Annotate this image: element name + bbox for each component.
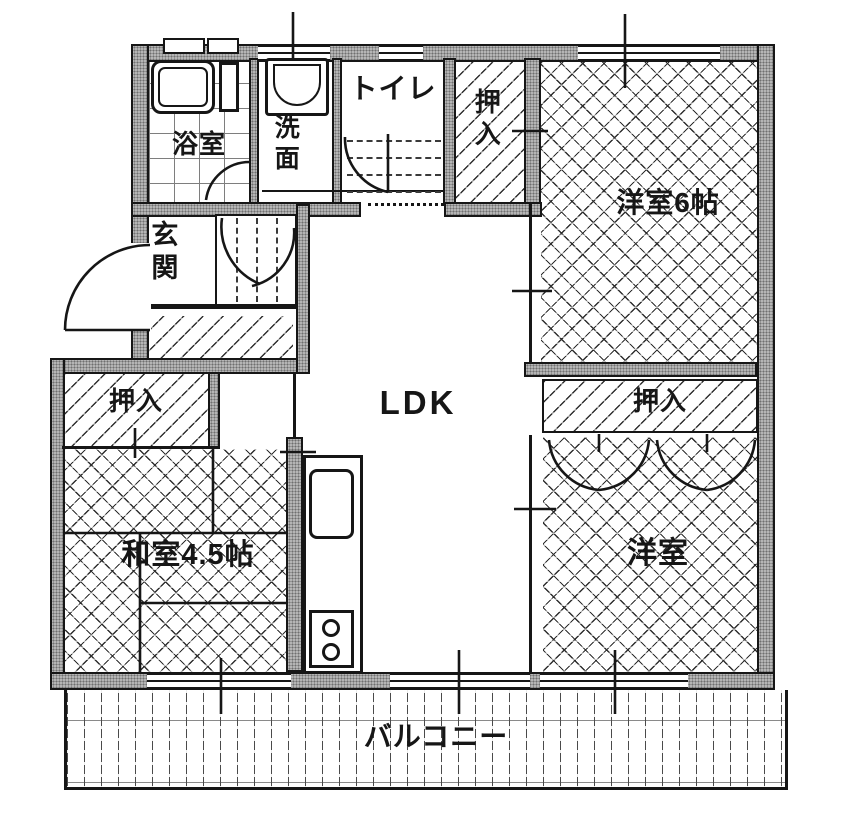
line-ldk-western2 xyxy=(529,435,532,672)
room-label-closet-top: 押入 xyxy=(472,88,499,152)
wall-japanese-right xyxy=(286,437,303,672)
room-label-bath: 浴室 xyxy=(153,131,245,158)
room-label-toilet: トイレ xyxy=(341,74,445,103)
wall-bath-wash xyxy=(249,58,259,204)
entrance-closet-line xyxy=(236,218,238,302)
wall-wing-top xyxy=(50,358,310,374)
corridor-floor-line xyxy=(347,140,441,142)
wall-right xyxy=(757,44,775,690)
room-label-ldk: LDK xyxy=(366,386,470,421)
toilet-door-arc xyxy=(345,137,388,192)
corridor-floor-line xyxy=(347,191,441,193)
room-label-western2: 洋室 xyxy=(608,538,708,570)
floor-plan: 浴室 洗面 トイレ 押入 洋室6帖 玄関 LDK 押入 和室4.5帖 押入 洋室… xyxy=(0,0,847,813)
line-ldk-western6 xyxy=(529,204,532,362)
entrance-closet-line xyxy=(276,218,278,302)
window-top-western6 xyxy=(578,44,720,62)
stove-burner xyxy=(322,643,340,661)
window-bottom-western2 xyxy=(540,672,688,690)
line-japanese-ldk xyxy=(293,374,296,437)
kitchen-sink xyxy=(309,469,354,539)
room-label-japanese: 和室4.5帖 xyxy=(92,540,284,570)
window-top-toilet xyxy=(379,44,423,62)
wall-closettop-bottom xyxy=(444,202,542,217)
room-label-balcony: バルコニー xyxy=(340,722,532,751)
window-bottom-japanese xyxy=(147,672,291,690)
wall-western6-closetr xyxy=(524,362,757,377)
bath-shelf xyxy=(219,62,239,112)
room-label-washroom: 洗面 xyxy=(272,114,298,176)
window-bottom-ldk xyxy=(390,672,530,690)
stove-burner xyxy=(322,619,340,637)
bathtub-inner xyxy=(158,67,208,107)
window-top-small xyxy=(207,38,239,54)
room-label-western6: 洋室6帖 xyxy=(580,188,756,217)
entrance-closet-line xyxy=(256,218,258,302)
room-label-closet-right: 押入 xyxy=(612,388,708,415)
window-top-bath xyxy=(163,38,205,54)
wall-closet-western6 xyxy=(524,58,541,204)
wall-closetl-right xyxy=(208,372,220,448)
corridor-ldk-opening xyxy=(368,203,444,206)
corridor-floor-line xyxy=(347,157,441,159)
wall-left-lower xyxy=(50,358,65,690)
wall-entrance-ldk xyxy=(296,204,310,374)
line-closetl-bottom xyxy=(62,446,220,449)
entrance-hall-floor xyxy=(143,316,293,358)
corridor-floor-line xyxy=(347,174,441,176)
room-label-entrance: 玄関 xyxy=(148,220,176,286)
room-label-closet-left: 押入 xyxy=(88,388,184,415)
